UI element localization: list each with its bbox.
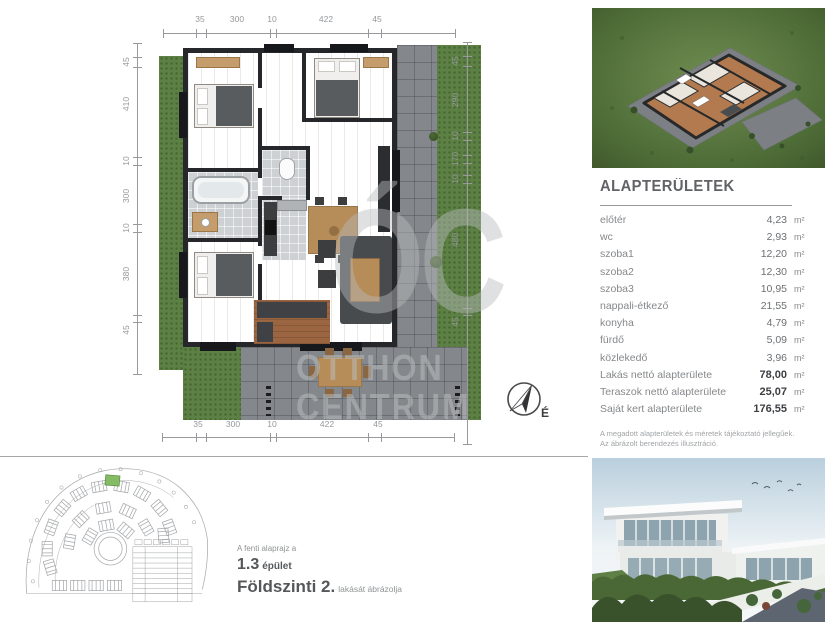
- row-value: 25,07: [743, 386, 787, 398]
- title-underline: [600, 205, 792, 206]
- row-value: 21,55: [743, 300, 787, 312]
- row-unit: m²: [794, 249, 814, 259]
- row-value: 5,09: [743, 334, 787, 346]
- wall: [302, 118, 392, 122]
- areas-table: előtér 4,23 m² wc 2,93 m² szoba1 12,20 m…: [600, 214, 814, 420]
- row-unit: m²: [794, 267, 814, 277]
- grass-bottom-left: [183, 347, 241, 420]
- chair: [338, 197, 347, 205]
- table-row: előtér 4,23 m²: [600, 214, 814, 231]
- wall: [188, 238, 262, 242]
- window: [179, 92, 187, 138]
- bed: [194, 84, 254, 128]
- dim-label: 45: [121, 47, 131, 77]
- row-unit: m²: [794, 335, 814, 345]
- dim-label: 35: [195, 14, 204, 24]
- row-value: 10,95: [743, 283, 787, 295]
- row-label: konyha: [600, 317, 743, 329]
- compass-icon: [497, 378, 559, 428]
- bed: [314, 58, 360, 118]
- row-unit: m²: [794, 284, 814, 294]
- terrace-chair: [309, 366, 317, 378]
- row-value: 12,30: [743, 266, 787, 278]
- dim-label: 10: [121, 146, 131, 176]
- floor-suffix: lakását ábrázolja: [338, 584, 402, 594]
- wall: [302, 53, 306, 118]
- table-row: nappali-étkező 21,55 m²: [600, 300, 814, 317]
- caption-block: A fenti alaprajz a 1.3épület Földszinti …: [237, 544, 402, 597]
- dim-label: 480: [450, 225, 460, 255]
- row-value: 3,96: [743, 352, 787, 364]
- wardrobe: [363, 57, 389, 68]
- window: [200, 342, 236, 351]
- kitchen-worktop: [277, 200, 307, 211]
- row-unit: m²: [794, 301, 814, 311]
- north-label: É: [541, 406, 549, 420]
- table-row: wc 2,93 m²: [600, 231, 814, 248]
- wall: [306, 146, 310, 200]
- dim-label: 300: [226, 419, 240, 429]
- section-divider: [0, 456, 588, 457]
- dim-label: 10: [450, 164, 460, 194]
- table-row: Saját kert alapterülete 176,55 m²: [600, 403, 814, 420]
- bathtub: [192, 176, 250, 204]
- outdoor-sofa: [257, 322, 273, 342]
- row-label: szoba2: [600, 266, 743, 278]
- row-unit: m²: [794, 404, 814, 414]
- row-label: fürdő: [600, 334, 743, 346]
- dim-label: 380: [121, 259, 131, 289]
- dim-label: 10: [267, 14, 276, 24]
- building-3d-render: [592, 8, 825, 168]
- dim-label: 290: [450, 85, 460, 115]
- row-value: 2,93: [743, 231, 787, 243]
- row-label: wc: [600, 231, 743, 243]
- coffee-table: [350, 258, 380, 302]
- wall: [258, 53, 262, 88]
- chair: [315, 197, 324, 205]
- dim-label: 300: [230, 14, 244, 24]
- table-row: Teraszok nettó alapterülete 25,07 m²: [600, 386, 814, 403]
- table-row: konyha 4,79 m²: [600, 317, 814, 334]
- floor-unit-label: Földszinti 2.: [237, 577, 335, 596]
- row-label: szoba3: [600, 283, 743, 295]
- table-row: szoba2 12,30 m²: [600, 266, 814, 283]
- shrub: [430, 256, 442, 268]
- terrace-chair: [343, 348, 352, 356]
- row-unit: m²: [794, 353, 814, 363]
- north-compass: É: [497, 378, 559, 428]
- dim-label: 422: [320, 419, 334, 429]
- row-value: 12,20: [743, 248, 787, 260]
- terrace-table: [318, 357, 362, 387]
- building-number: 1.3: [237, 556, 259, 573]
- row-value: 78,00: [743, 369, 787, 381]
- row-label: előtér: [600, 214, 743, 226]
- dim-label: 300: [121, 181, 131, 211]
- cooktop: [265, 220, 276, 235]
- wall: [262, 146, 310, 150]
- fence-posts: [455, 386, 460, 416]
- table-row: fürdő 5,09 m²: [600, 334, 814, 351]
- brochure-page: 35 300 10 422 45 35 300 10 422 45 45 410…: [0, 0, 825, 622]
- terrace-chair: [343, 389, 352, 397]
- terrace-chair: [325, 348, 334, 356]
- caption-intro: A fenti alaprajz a: [237, 544, 402, 553]
- tv-cabinet: [378, 146, 390, 232]
- toilet: [279, 158, 295, 180]
- entry-door: [264, 44, 294, 52]
- areas-title: ALAPTERÜLETEK: [600, 178, 811, 196]
- row-label: Lakás nettó alapterülete: [600, 369, 743, 381]
- row-value: 176,55: [743, 403, 787, 415]
- row-label: nappali-étkező: [600, 300, 743, 312]
- dim-label: 45: [450, 46, 460, 76]
- building-word: épület: [262, 561, 291, 572]
- fence-posts: [266, 386, 271, 416]
- outdoor-sofa: [257, 302, 327, 318]
- dim-label: 10: [121, 213, 131, 243]
- dim-label: 35: [193, 419, 202, 429]
- dim-label: 45: [450, 307, 460, 337]
- table-row: szoba3 10,95 m²: [600, 283, 814, 300]
- window: [330, 44, 368, 52]
- dim-label: 45: [372, 14, 381, 24]
- row-label: közlekedő: [600, 352, 743, 364]
- wall: [188, 168, 262, 172]
- shrub: [429, 132, 438, 141]
- row-label: Teraszok nettó alapterülete: [600, 386, 743, 398]
- row-unit: m²: [794, 215, 814, 225]
- site-plan-thumbnail: [10, 459, 220, 612]
- row-unit: m²: [794, 232, 814, 242]
- bed: [194, 252, 254, 298]
- wardrobe: [196, 57, 240, 68]
- row-value: 4,79: [743, 317, 787, 329]
- armchair: [318, 270, 336, 288]
- disclaimer-line-1: A megadott alapterületek és méretek tájé…: [600, 429, 812, 439]
- table-row: szoba1 12,20 m²: [600, 248, 814, 265]
- disclaimer-note: A megadott alapterületek és méretek tájé…: [600, 429, 812, 448]
- armchair: [318, 240, 336, 258]
- terrace-chair: [363, 366, 371, 378]
- dim-label: 45: [373, 419, 382, 429]
- row-value: 4,23: [743, 214, 787, 226]
- window: [179, 252, 187, 298]
- dim-label: 410: [121, 89, 131, 119]
- row-unit: m²: [794, 318, 814, 328]
- building-exterior-photo: [592, 458, 825, 622]
- disclaimer-line-2: Az ábrázolt berendezés illusztráció.: [600, 439, 812, 449]
- terrace-chair: [325, 389, 334, 397]
- dim-label: 10: [267, 419, 276, 429]
- row-label: Saját kert alapterülete: [600, 403, 743, 415]
- window: [392, 150, 400, 212]
- areas-panel: ALAPTERÜLETEK előtér 4,23 m² wc 2,93 m² …: [600, 178, 822, 448]
- dim-label: 45: [121, 315, 131, 345]
- table-row: közlekedő 3,96 m²: [600, 352, 814, 369]
- table-row: Lakás nettó alapterülete 78,00 m²: [600, 369, 814, 386]
- bathroom-sink: [192, 212, 218, 232]
- dim-label: 422: [319, 14, 333, 24]
- row-unit: m²: [794, 370, 814, 380]
- row-label: szoba1: [600, 248, 743, 260]
- row-unit: m²: [794, 387, 814, 397]
